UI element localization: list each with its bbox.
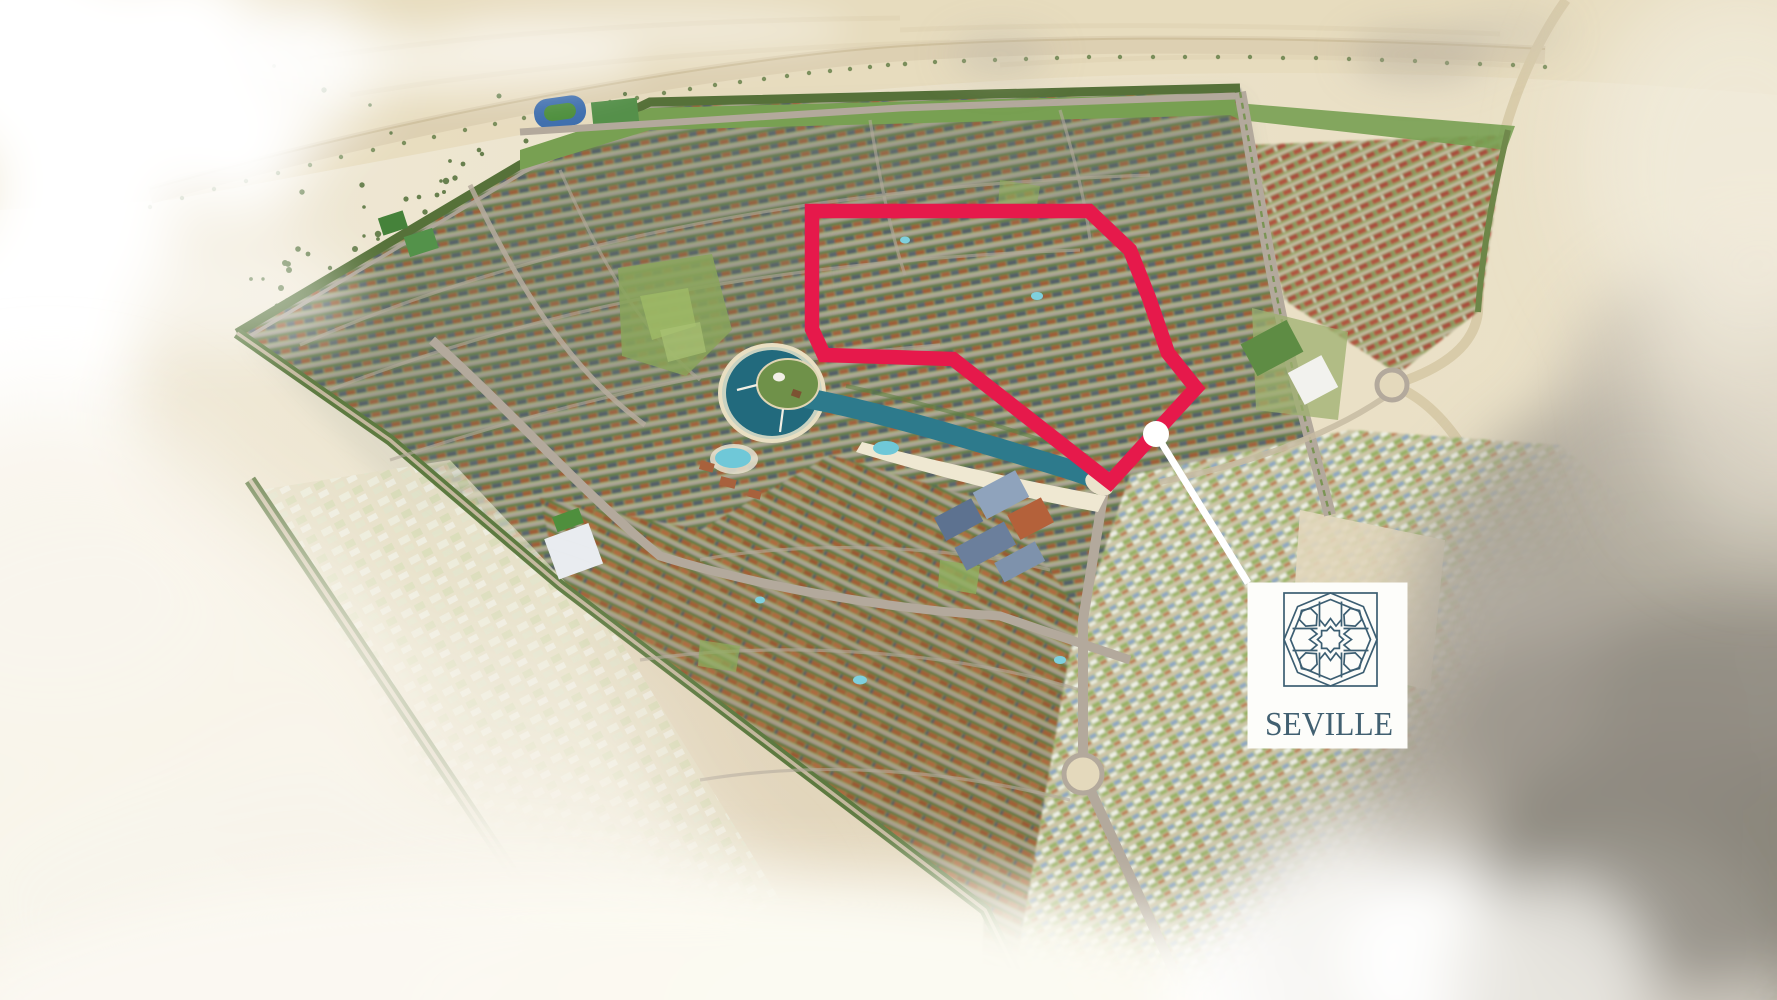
svg-text:SEVILLE: SEVILLE [1265,706,1393,743]
